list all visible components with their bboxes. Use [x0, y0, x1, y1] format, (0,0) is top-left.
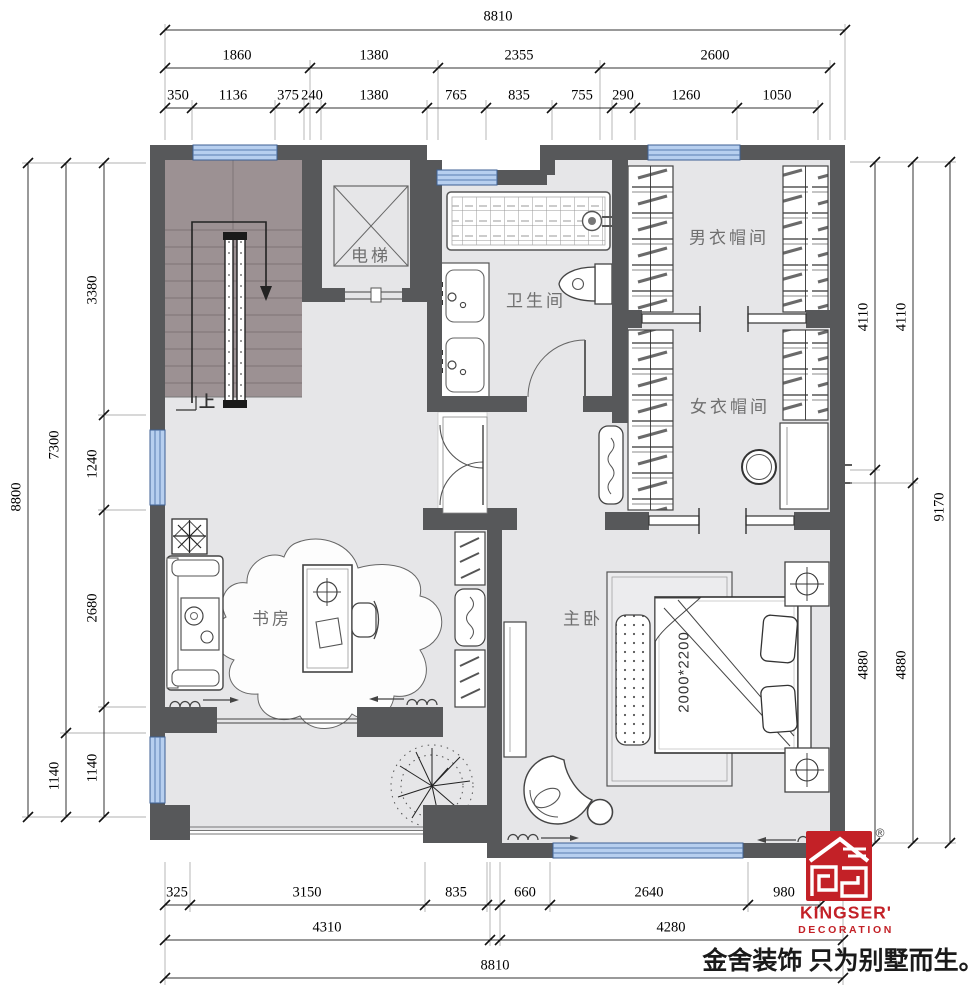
room-label-mens-cloakroom: 男衣帽间 [689, 224, 769, 249]
wall-shelving [455, 532, 485, 707]
entry-bench [599, 426, 623, 504]
dim-label: 3150 [293, 885, 322, 902]
kingser-logo-icon [806, 831, 872, 901]
dim-label: 350 [167, 88, 189, 105]
room-label-study: 书房 [252, 605, 292, 630]
dim-label: 290 [612, 88, 634, 105]
dim-label: 3380 [85, 276, 102, 305]
side-table [588, 800, 613, 825]
window [553, 843, 743, 858]
dim-label: 835 [445, 885, 467, 902]
window [648, 145, 740, 160]
tv-cabinet [504, 622, 526, 757]
dim-label: 2355 [505, 48, 534, 65]
dim-label: 765 [445, 88, 467, 105]
window [193, 145, 277, 160]
dim-label: 375 [277, 88, 299, 105]
logo-slogan: 金舍装饰 只为别墅而生。 [702, 941, 971, 977]
dim-label: 4280 [657, 920, 686, 937]
dim-label: 980 [773, 885, 795, 902]
dim-label: 4110 [856, 303, 873, 331]
bed-bench [616, 615, 650, 745]
staircase [165, 160, 302, 410]
dim-label: 2640 [635, 885, 664, 902]
wardrobe-strip [783, 166, 828, 312]
dim-label: 325 [166, 885, 188, 902]
window [150, 737, 165, 803]
double-door [440, 417, 487, 513]
window [150, 430, 165, 505]
dim-label: 1380 [360, 48, 389, 65]
window [437, 170, 497, 185]
room-label-elevator: 电梯 [351, 242, 391, 267]
registered-mark: ® [876, 826, 885, 840]
wardrobe-strip [783, 330, 828, 420]
desk-chair [352, 601, 379, 639]
dim-label: 9170 [932, 493, 949, 522]
dim-label: 4880 [856, 651, 873, 680]
floorplan-canvas [0, 0, 971, 1000]
dim-label: 1860 [223, 48, 252, 65]
dim-label: 1260 [672, 88, 701, 105]
dim-label: 4310 [313, 920, 342, 937]
wardrobe-strip [628, 166, 673, 312]
nightstand [785, 562, 829, 606]
dim-label: 1140 [47, 762, 64, 790]
bed-size-label: 2000*2200 [676, 631, 693, 713]
floorplan-page: 8810 1860 1380 2355 2600 350 1136 375 24… [0, 0, 971, 1000]
dim-label: 8810 [481, 958, 510, 975]
dim-label: 755 [571, 88, 593, 105]
logo-division-text: DECORATION [798, 924, 894, 936]
dim-label: 1380 [360, 88, 389, 105]
corner-plant [172, 519, 207, 554]
room-label-master-bedroom: 主卧 [563, 605, 603, 630]
dim-label: 1140 [85, 754, 102, 782]
logo-brand-text: KINGSER' [800, 903, 892, 924]
dim-label: 660 [514, 885, 536, 902]
dim-label: 1136 [219, 88, 247, 105]
dim-label: 4110 [894, 303, 911, 331]
daybed-sofa [167, 556, 223, 690]
dim-label: 1240 [85, 450, 102, 479]
dim-label: 835 [508, 88, 530, 105]
dim-label: 2680 [85, 594, 102, 623]
room-label-stairs-up: 上 [199, 388, 215, 412]
room-label-bathroom: 卫生间 [506, 287, 566, 312]
dim-label: 2600 [701, 48, 730, 65]
dim-label: 8810 [484, 9, 513, 26]
dim-label: 240 [301, 88, 323, 105]
dim-label: 7300 [47, 431, 64, 460]
room-label-womens-cloakroom: 女衣帽间 [690, 393, 770, 418]
double-sink-vanity [436, 263, 489, 397]
desk [303, 565, 352, 672]
nightstand [785, 748, 829, 792]
bathtub [447, 192, 612, 250]
dim-label: 4880 [894, 651, 911, 680]
wardrobe-strip [628, 330, 673, 510]
dim-label: 1050 [763, 88, 792, 105]
stool [742, 450, 776, 484]
dim-label: 8800 [9, 483, 26, 512]
